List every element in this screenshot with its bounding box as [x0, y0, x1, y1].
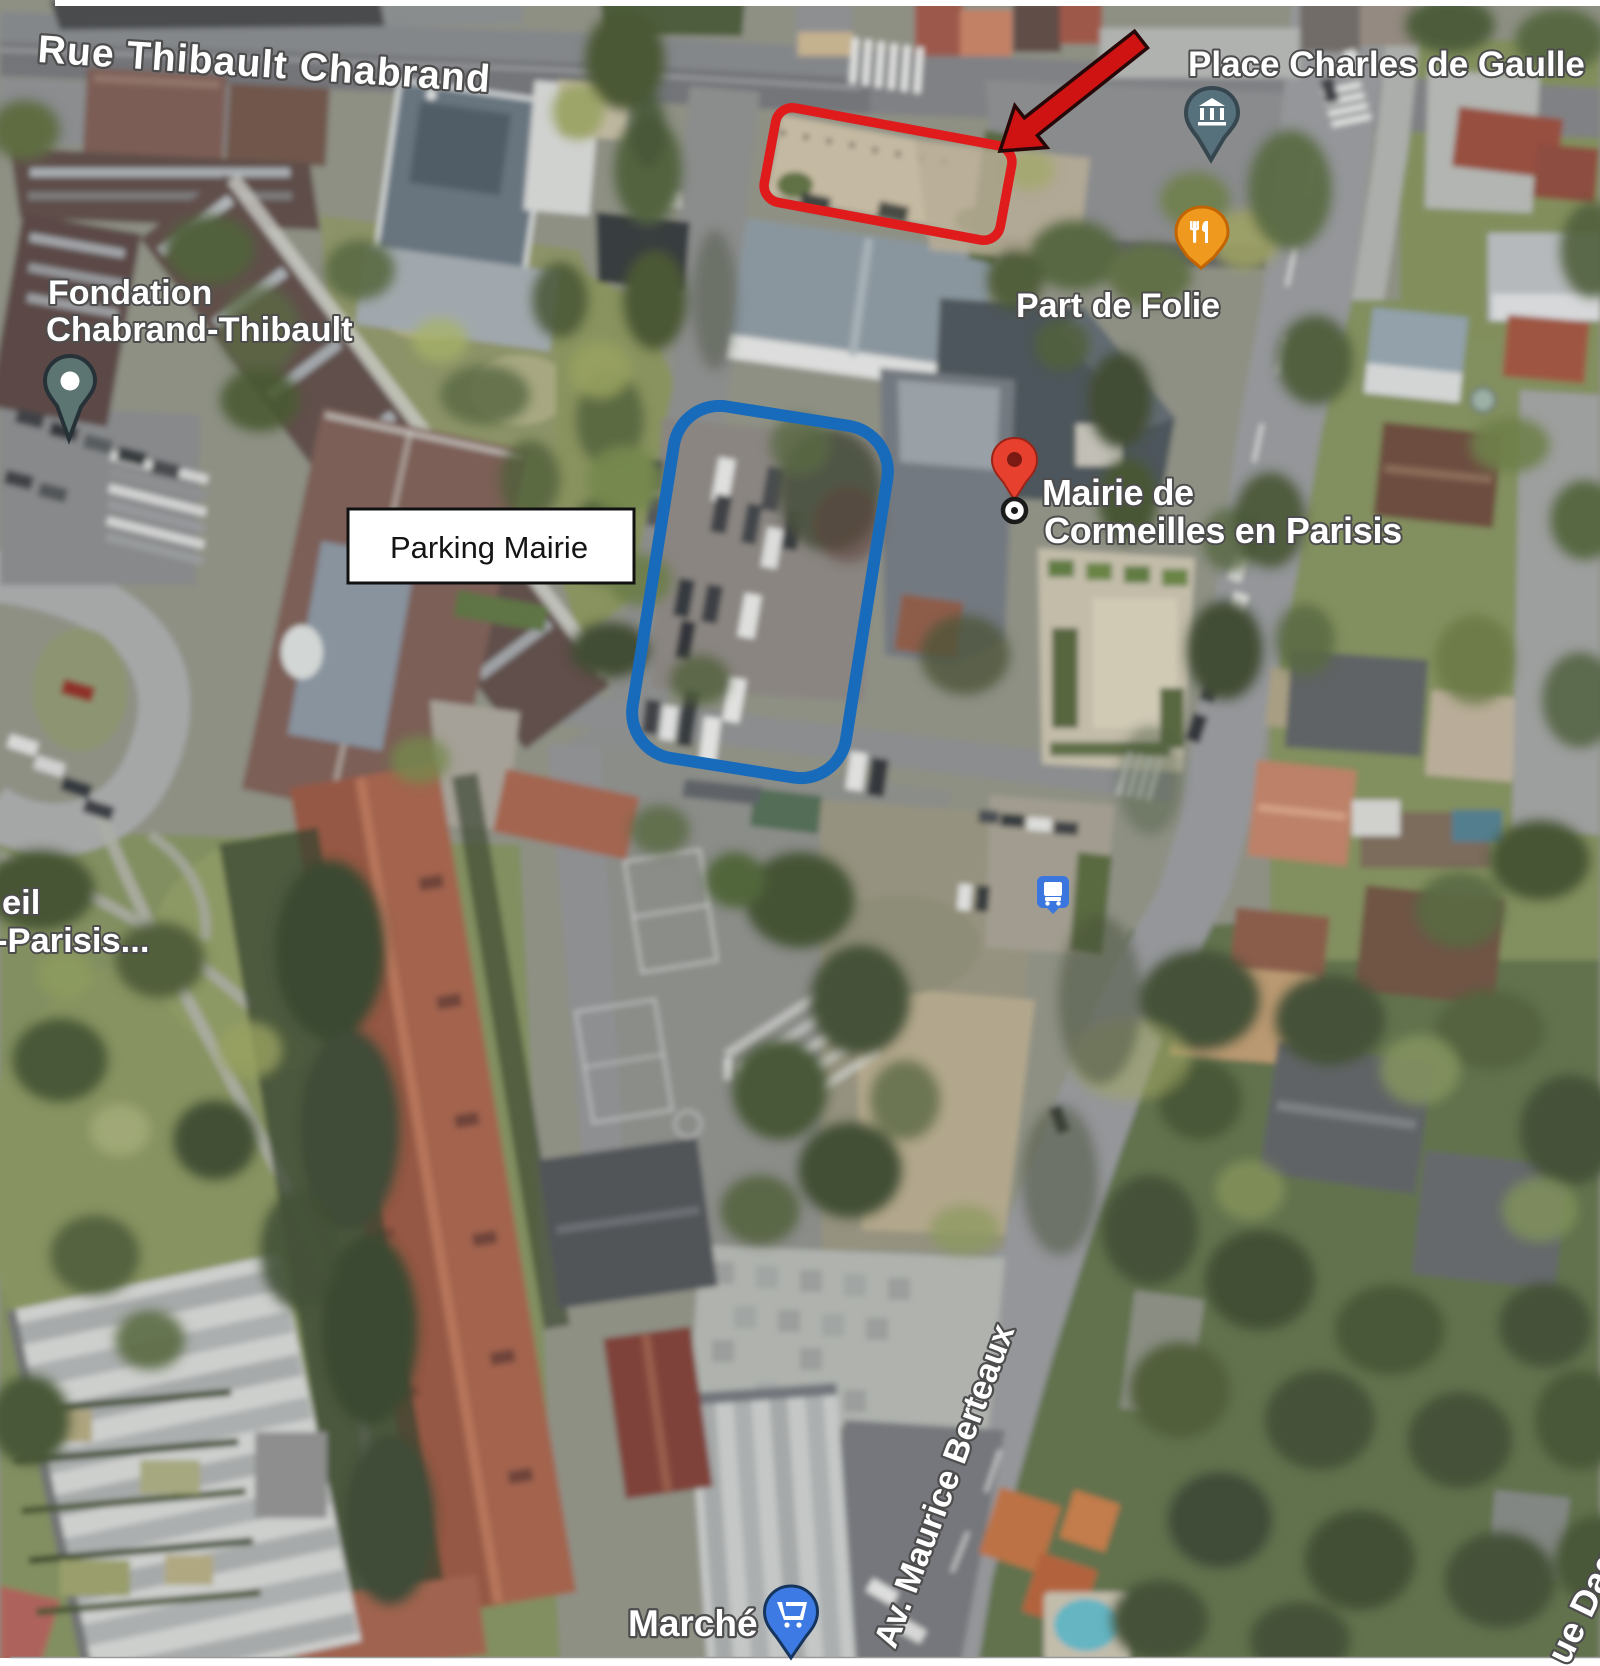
svg-text:Chabrand-Thibault: Chabrand-Thibault	[46, 311, 353, 349]
svg-text:Cormeilles en Parisis: Cormeilles en Parisis	[1044, 510, 1402, 551]
svg-text:Fondation: Fondation	[48, 274, 212, 312]
svg-text:Parking Mairie: Parking Mairie	[390, 530, 588, 565]
svg-text:-Parisis...: -Parisis...	[0, 922, 149, 960]
svg-text:Marché: Marché	[628, 1603, 758, 1644]
svg-text:eil: eil	[2, 884, 40, 922]
svg-text:Part de Folie: Part de Folie	[1016, 287, 1220, 325]
svg-text:Place Charles de Gaulle: Place Charles de Gaulle	[1188, 45, 1585, 84]
svg-text:Mairie de: Mairie de	[1042, 472, 1194, 513]
